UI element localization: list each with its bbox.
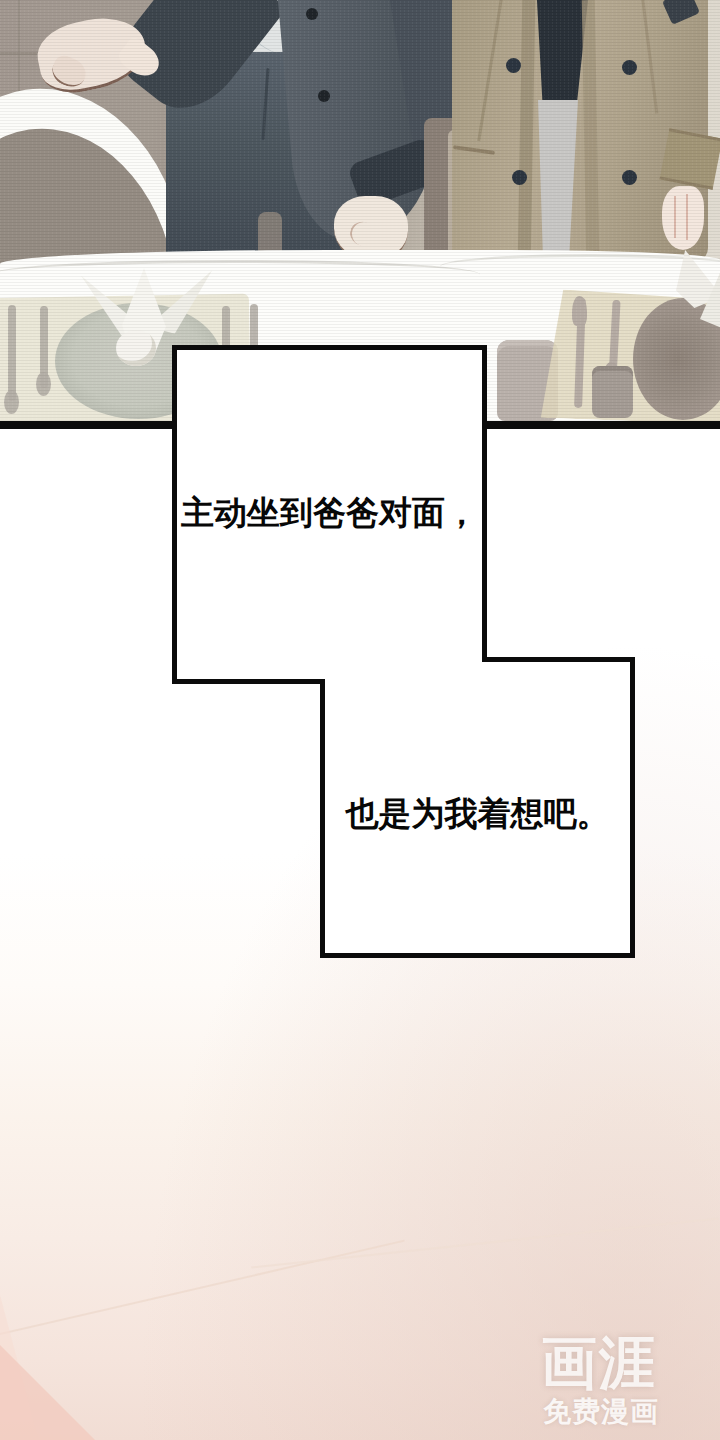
small-cup xyxy=(592,366,633,418)
right-figure-cuff xyxy=(660,128,720,189)
left-figure-jacket-button xyxy=(318,90,330,102)
caption-text-2: 也是为我着想吧。 xyxy=(325,795,630,832)
right-figure-coat-button xyxy=(622,60,637,75)
right-figure-finger-line xyxy=(686,194,688,240)
spoon-bowl xyxy=(36,372,51,396)
spoon-bowl xyxy=(4,390,19,414)
tablecloth-fold-line xyxy=(0,260,480,289)
bottom-panel-illustration xyxy=(0,429,720,1440)
watermark-subtitle: 免费漫画 xyxy=(543,1393,659,1431)
top-panel-illustration xyxy=(0,0,720,421)
fork xyxy=(250,304,258,410)
comic-page[interactable]: 主动坐到爸爸对面， 也是为我着想吧。 画涯 免费漫画 xyxy=(0,0,720,1440)
right-figure-coat-button xyxy=(506,58,521,73)
knife xyxy=(222,306,230,410)
huaya-logo: 画涯 xyxy=(541,1324,657,1403)
fork-head xyxy=(572,296,587,326)
right-figure-finger-line xyxy=(674,196,676,238)
folded-napkin-knot xyxy=(116,330,156,366)
right-figure-coat-button xyxy=(512,170,527,185)
panel-divider-line xyxy=(0,421,720,429)
right-figure-coat-button xyxy=(622,170,637,185)
spoon xyxy=(8,305,16,401)
left-figure-jacket-button xyxy=(306,8,318,20)
right-figure-hand xyxy=(662,186,704,250)
tablecloth-fold-line xyxy=(440,254,720,279)
caption-text-1: 主动坐到爸爸对面， xyxy=(177,494,482,531)
